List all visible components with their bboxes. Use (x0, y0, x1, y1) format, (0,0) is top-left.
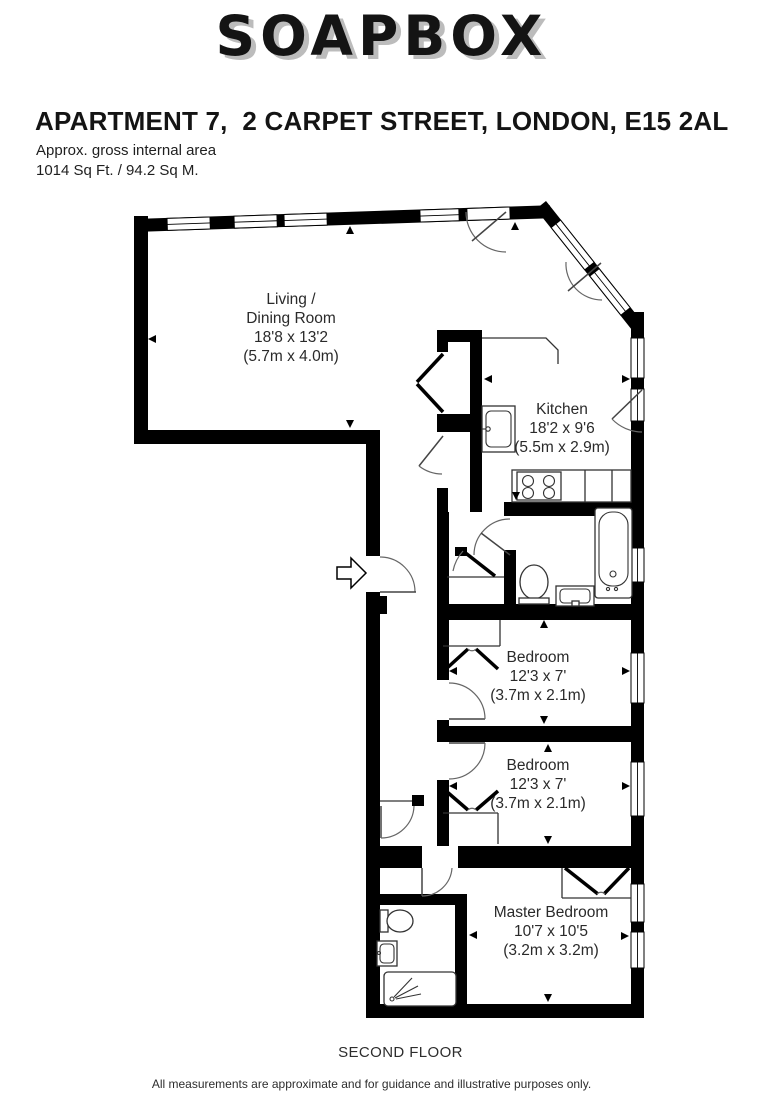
floorplan-svg (0, 0, 763, 1117)
shower-icon (384, 972, 456, 1006)
room-name: Dining Room (243, 309, 339, 328)
label-bedroom-2: Bedroom 12'3 x 7' (3.7m x 2.1m) (490, 756, 586, 813)
floor-label: SECOND FLOOR (19, 1044, 763, 1061)
room-dims: 10'7 x 10'5 (494, 922, 609, 941)
label-bedroom-1: Bedroom 12'3 x 7' (3.7m x 2.1m) (490, 648, 586, 705)
bathroom-sink-icon (556, 586, 594, 606)
room-metric: (3.7m x 2.1m) (490, 794, 586, 813)
bathtub-icon (595, 508, 632, 598)
disclaimer-text: All measurements are approximate and for… (0, 1077, 753, 1091)
room-dims: 12'3 x 7' (490, 667, 586, 686)
room-name: Kitchen (514, 400, 610, 419)
bedroom1-door (449, 683, 485, 719)
toilet-icon (519, 565, 549, 604)
floorplan-page: SOAPBOX APARTMENT 7, 2 CARPET STREET, LO… (0, 0, 763, 1117)
master-door (422, 868, 452, 896)
master-wardrobe-icon (562, 868, 631, 898)
closet-column-walls (437, 330, 482, 512)
kitchen-sink-icon (482, 406, 515, 452)
entry-door (380, 557, 416, 592)
room-dims: 18'8 x 13'2 (243, 328, 339, 347)
hob-icon (517, 472, 561, 500)
right-wall (631, 312, 644, 1018)
ensuite-toilet-icon (380, 910, 413, 932)
room-dims: 18'2 x 9'6 (514, 419, 610, 438)
room-name: Master Bedroom (494, 903, 609, 922)
bathroom-door (474, 519, 510, 555)
label-master-bedroom: Master Bedroom 10'7 x 10'5 (3.2m x 3.2m) (494, 903, 609, 960)
hall-lower-door (381, 806, 414, 838)
ensuite-sink-icon (377, 941, 397, 966)
room-dims: 12'3 x 7' (490, 775, 586, 794)
diagonal-wall (536, 201, 642, 330)
room-metric: (5.7m x 4.0m) (243, 347, 339, 366)
room-name: Living / (243, 290, 339, 309)
room-metric: (3.7m x 2.1m) (490, 686, 586, 705)
bedroom2-door (449, 743, 485, 779)
kitchen-boundary (482, 338, 558, 364)
room-metric: (3.2m x 3.2m) (494, 941, 609, 960)
room-name: Bedroom (490, 648, 586, 667)
entry-arrow-icon (337, 558, 366, 588)
living-bottom-wall (134, 430, 380, 444)
room-name: Bedroom (490, 756, 586, 775)
left-wall (134, 216, 148, 444)
label-living-dining: Living / Dining Room 18'8 x 13'2 (5.7m x… (243, 290, 339, 366)
label-kitchen: Kitchen 18'2 x 9'6 (5.5m x 2.9m) (514, 400, 610, 457)
room-metric: (5.5m x 2.9m) (514, 438, 610, 457)
